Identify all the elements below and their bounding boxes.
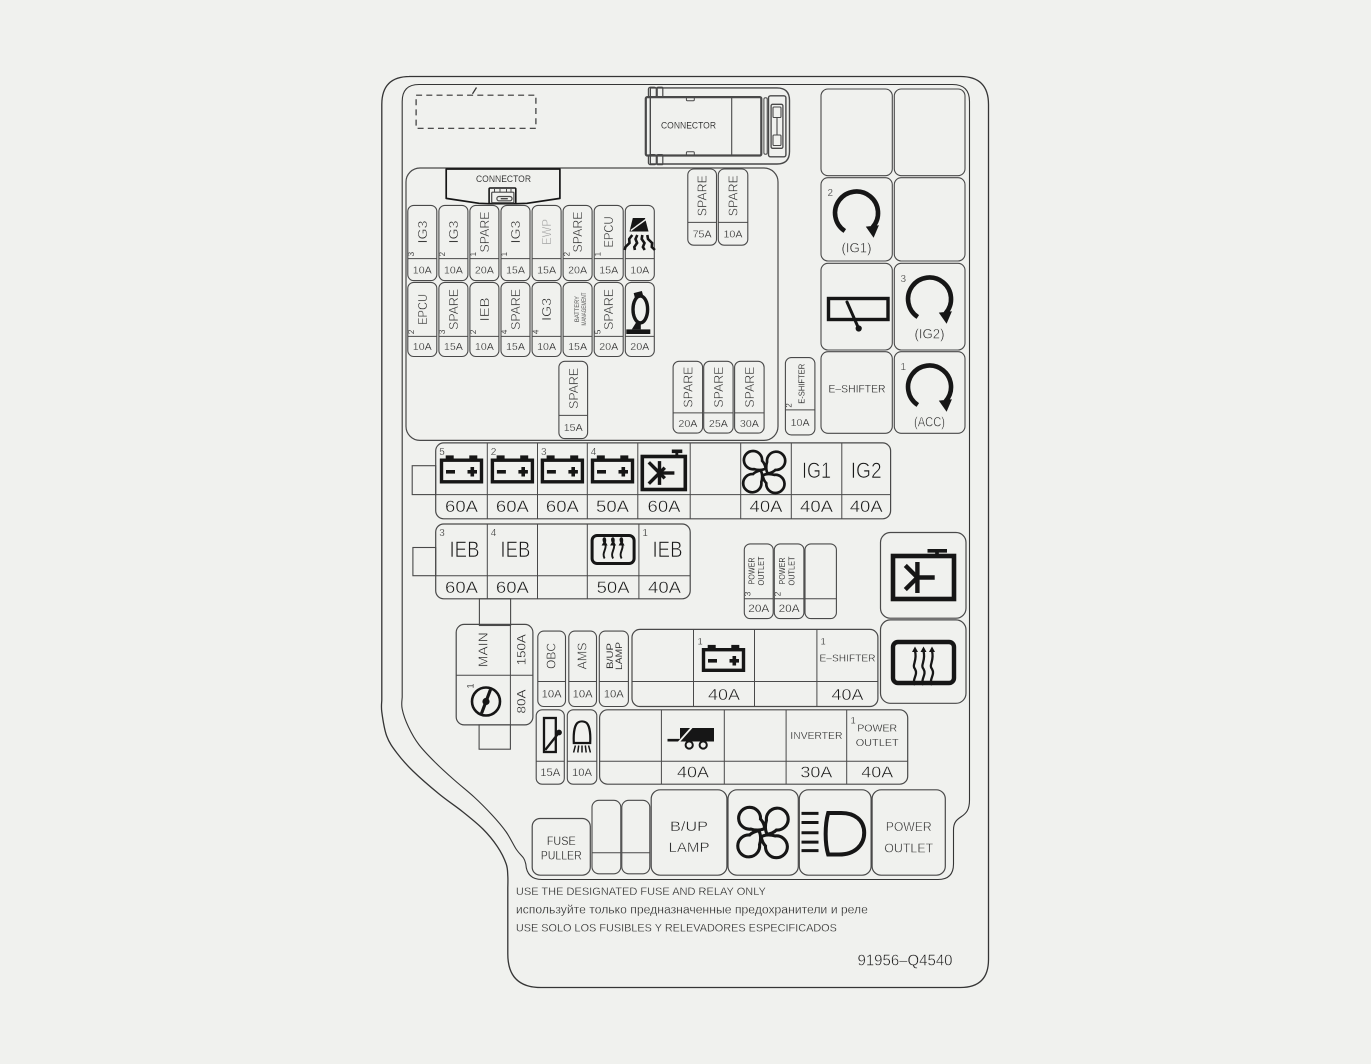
svg-text:2: 2 bbox=[491, 447, 497, 458]
svg-text:EPCU: EPCU bbox=[415, 294, 430, 325]
svg-text:CONNECTOR: CONNECTOR bbox=[476, 174, 531, 184]
svg-text:SPARE: SPARE bbox=[477, 211, 492, 252]
svg-text:3: 3 bbox=[439, 528, 445, 539]
svg-text:20A: 20A bbox=[748, 603, 770, 615]
svg-text:10A: 10A bbox=[604, 689, 625, 701]
svg-text:SPARE: SPARE bbox=[742, 366, 757, 407]
svg-text:40A: 40A bbox=[861, 765, 893, 782]
svg-text:IG1: IG1 bbox=[802, 458, 831, 483]
svg-text:80A: 80A bbox=[514, 690, 528, 714]
svg-text:5: 5 bbox=[439, 447, 445, 458]
svg-text:20A: 20A bbox=[568, 264, 587, 276]
svg-text:MAIN: MAIN bbox=[476, 632, 491, 667]
svg-text:1: 1 bbox=[901, 362, 907, 373]
svg-text:40A: 40A bbox=[750, 498, 783, 516]
svg-text:SPARE: SPARE bbox=[446, 289, 461, 330]
svg-text:B/UP: B/UP bbox=[670, 818, 708, 834]
svg-text:20A: 20A bbox=[599, 341, 618, 353]
svg-text:USE THE DESIGNATED FUSE AND RE: USE THE DESIGNATED FUSE AND RELAY ONLY bbox=[516, 886, 767, 898]
svg-text:10A: 10A bbox=[724, 229, 743, 241]
svg-text:4: 4 bbox=[531, 329, 540, 334]
svg-text:PULLER: PULLER bbox=[541, 849, 582, 863]
svg-text:15A: 15A bbox=[537, 264, 556, 276]
svg-text:5: 5 bbox=[593, 329, 602, 334]
svg-text:CONNECTOR: CONNECTOR bbox=[661, 121, 716, 131]
svg-text:60A: 60A bbox=[496, 579, 529, 597]
svg-text:60A: 60A bbox=[546, 498, 579, 516]
svg-text:SPARE: SPARE bbox=[680, 366, 695, 407]
svg-text:60A: 60A bbox=[445, 579, 478, 597]
svg-text:(ACC): (ACC) bbox=[914, 415, 945, 430]
svg-text:IEB: IEB bbox=[500, 537, 530, 562]
svg-text:2: 2 bbox=[562, 251, 571, 256]
svg-text:15A: 15A bbox=[540, 767, 561, 779]
svg-text:4: 4 bbox=[491, 528, 497, 539]
svg-text:1: 1 bbox=[593, 251, 602, 256]
svg-text:60A: 60A bbox=[496, 498, 529, 516]
svg-text:150A: 150A bbox=[514, 634, 528, 665]
svg-text:LAMP: LAMP bbox=[669, 839, 710, 855]
svg-text:40A: 40A bbox=[800, 498, 833, 516]
svg-text:IG3: IG3 bbox=[415, 221, 430, 244]
svg-text:4: 4 bbox=[500, 329, 509, 334]
svg-text:E–SHIFTER: E–SHIFTER bbox=[829, 384, 886, 396]
svg-text:OUTLET: OUTLET bbox=[884, 842, 933, 856]
svg-text:3: 3 bbox=[407, 251, 416, 256]
svg-text:15A: 15A bbox=[568, 341, 587, 353]
svg-text:1: 1 bbox=[851, 716, 856, 727]
svg-text:IG3: IG3 bbox=[508, 221, 523, 244]
svg-text:10A: 10A bbox=[572, 767, 593, 779]
svg-text:1: 1 bbox=[469, 251, 478, 256]
svg-text:10A: 10A bbox=[475, 341, 494, 353]
svg-text:POWER: POWER bbox=[886, 820, 932, 834]
svg-text:EWP: EWP bbox=[539, 219, 554, 245]
svg-text:15A: 15A bbox=[564, 422, 583, 434]
svg-text:10A: 10A bbox=[413, 264, 432, 276]
svg-text:1: 1 bbox=[466, 683, 476, 688]
svg-text:SPARE: SPARE bbox=[570, 211, 585, 252]
svg-text:20A: 20A bbox=[630, 341, 649, 353]
svg-text:40A: 40A bbox=[648, 579, 681, 597]
svg-text:OBC: OBC bbox=[545, 643, 559, 669]
svg-text:25A: 25A bbox=[709, 418, 728, 430]
svg-text:IEB: IEB bbox=[653, 537, 683, 562]
svg-text:LAMP: LAMP bbox=[614, 642, 624, 670]
svg-text:3: 3 bbox=[901, 274, 907, 285]
svg-text:E–SHIFTER: E–SHIFTER bbox=[820, 653, 876, 665]
svg-text:OUTLET: OUTLET bbox=[756, 557, 766, 586]
svg-text:IG3: IG3 bbox=[446, 221, 461, 244]
svg-text:10A: 10A bbox=[630, 264, 649, 276]
svg-text:2: 2 bbox=[828, 188, 834, 199]
svg-text:IG3: IG3 bbox=[539, 298, 554, 321]
svg-text:SPARE: SPARE bbox=[601, 289, 616, 330]
svg-text:10A: 10A bbox=[537, 341, 556, 353]
svg-text:IG2: IG2 bbox=[851, 458, 882, 483]
svg-text:3: 3 bbox=[438, 329, 447, 334]
svg-text:INVERTER: INVERTER bbox=[790, 730, 842, 742]
svg-text:OUTLET: OUTLET bbox=[856, 737, 900, 749]
svg-text:2: 2 bbox=[407, 329, 416, 334]
svg-text:SPARE: SPARE bbox=[711, 366, 726, 407]
svg-text:40A: 40A bbox=[708, 687, 740, 704]
svg-text:SPARE: SPARE bbox=[726, 175, 741, 216]
svg-text:BATTERY: BATTERY bbox=[575, 296, 581, 322]
svg-text:1: 1 bbox=[642, 528, 648, 539]
svg-text:20A: 20A bbox=[779, 603, 801, 615]
svg-text:POWER: POWER bbox=[747, 558, 757, 585]
svg-text:20A: 20A bbox=[678, 418, 697, 430]
svg-text:2: 2 bbox=[438, 251, 447, 256]
svg-text:3: 3 bbox=[742, 591, 752, 596]
svg-text:EPCU: EPCU bbox=[601, 217, 616, 248]
svg-text:10A: 10A bbox=[791, 417, 810, 429]
svg-text:SPARE: SPARE bbox=[566, 368, 581, 409]
svg-text:40A: 40A bbox=[677, 765, 709, 782]
svg-text:2: 2 bbox=[469, 329, 478, 334]
svg-text:(IG1): (IG1) bbox=[842, 241, 872, 256]
svg-text:15A: 15A bbox=[506, 341, 525, 353]
svg-text:IEB: IEB bbox=[450, 537, 480, 562]
svg-text:(IG2): (IG2) bbox=[915, 327, 945, 342]
svg-text:91956–Q4540: 91956–Q4540 bbox=[858, 953, 953, 970]
svg-text:1: 1 bbox=[821, 637, 826, 648]
svg-text:MANAGEMENT: MANAGEMENT bbox=[582, 292, 588, 325]
svg-text:60A: 60A bbox=[648, 498, 681, 516]
svg-text:50A: 50A bbox=[596, 498, 629, 516]
svg-text:40A: 40A bbox=[832, 687, 864, 704]
svg-text:10A: 10A bbox=[542, 689, 563, 701]
svg-text:15A: 15A bbox=[506, 264, 525, 276]
svg-text:2: 2 bbox=[772, 591, 782, 596]
svg-text:OUTLET: OUTLET bbox=[786, 557, 796, 586]
svg-text:AMS: AMS bbox=[576, 643, 590, 670]
svg-text:SPARE: SPARE bbox=[508, 289, 523, 330]
svg-text:3: 3 bbox=[541, 447, 547, 458]
svg-text:4: 4 bbox=[591, 447, 597, 458]
svg-text:40A: 40A bbox=[850, 498, 883, 516]
svg-text:10A: 10A bbox=[444, 264, 463, 276]
svg-text:используйте только предназначе: используйте только предназначенные предо… bbox=[516, 905, 868, 917]
svg-text:POWER: POWER bbox=[857, 723, 897, 735]
svg-text:IEB: IEB bbox=[477, 297, 492, 321]
svg-text:E-SHIFTER: E-SHIFTER bbox=[797, 364, 807, 404]
svg-text:60A: 60A bbox=[445, 498, 478, 516]
svg-text:1: 1 bbox=[698, 637, 703, 648]
svg-text:SPARE: SPARE bbox=[695, 175, 710, 216]
svg-text:2: 2 bbox=[785, 403, 794, 408]
svg-text:20A: 20A bbox=[475, 264, 494, 276]
svg-text:10A: 10A bbox=[573, 689, 594, 701]
svg-text:10A: 10A bbox=[413, 341, 432, 353]
svg-text:15A: 15A bbox=[444, 341, 463, 353]
svg-text:1: 1 bbox=[500, 251, 509, 256]
svg-text:75A: 75A bbox=[693, 229, 712, 241]
svg-text:USE SOLO LOS FUSIBLES Y RELEVA: USE SOLO LOS FUSIBLES Y RELEVADORES ESPE… bbox=[516, 923, 837, 935]
svg-text:FUSE: FUSE bbox=[547, 834, 576, 848]
svg-text:30A: 30A bbox=[740, 418, 759, 430]
svg-text:50A: 50A bbox=[597, 579, 630, 597]
svg-text:30A: 30A bbox=[800, 765, 832, 782]
svg-text:15A: 15A bbox=[599, 264, 618, 276]
